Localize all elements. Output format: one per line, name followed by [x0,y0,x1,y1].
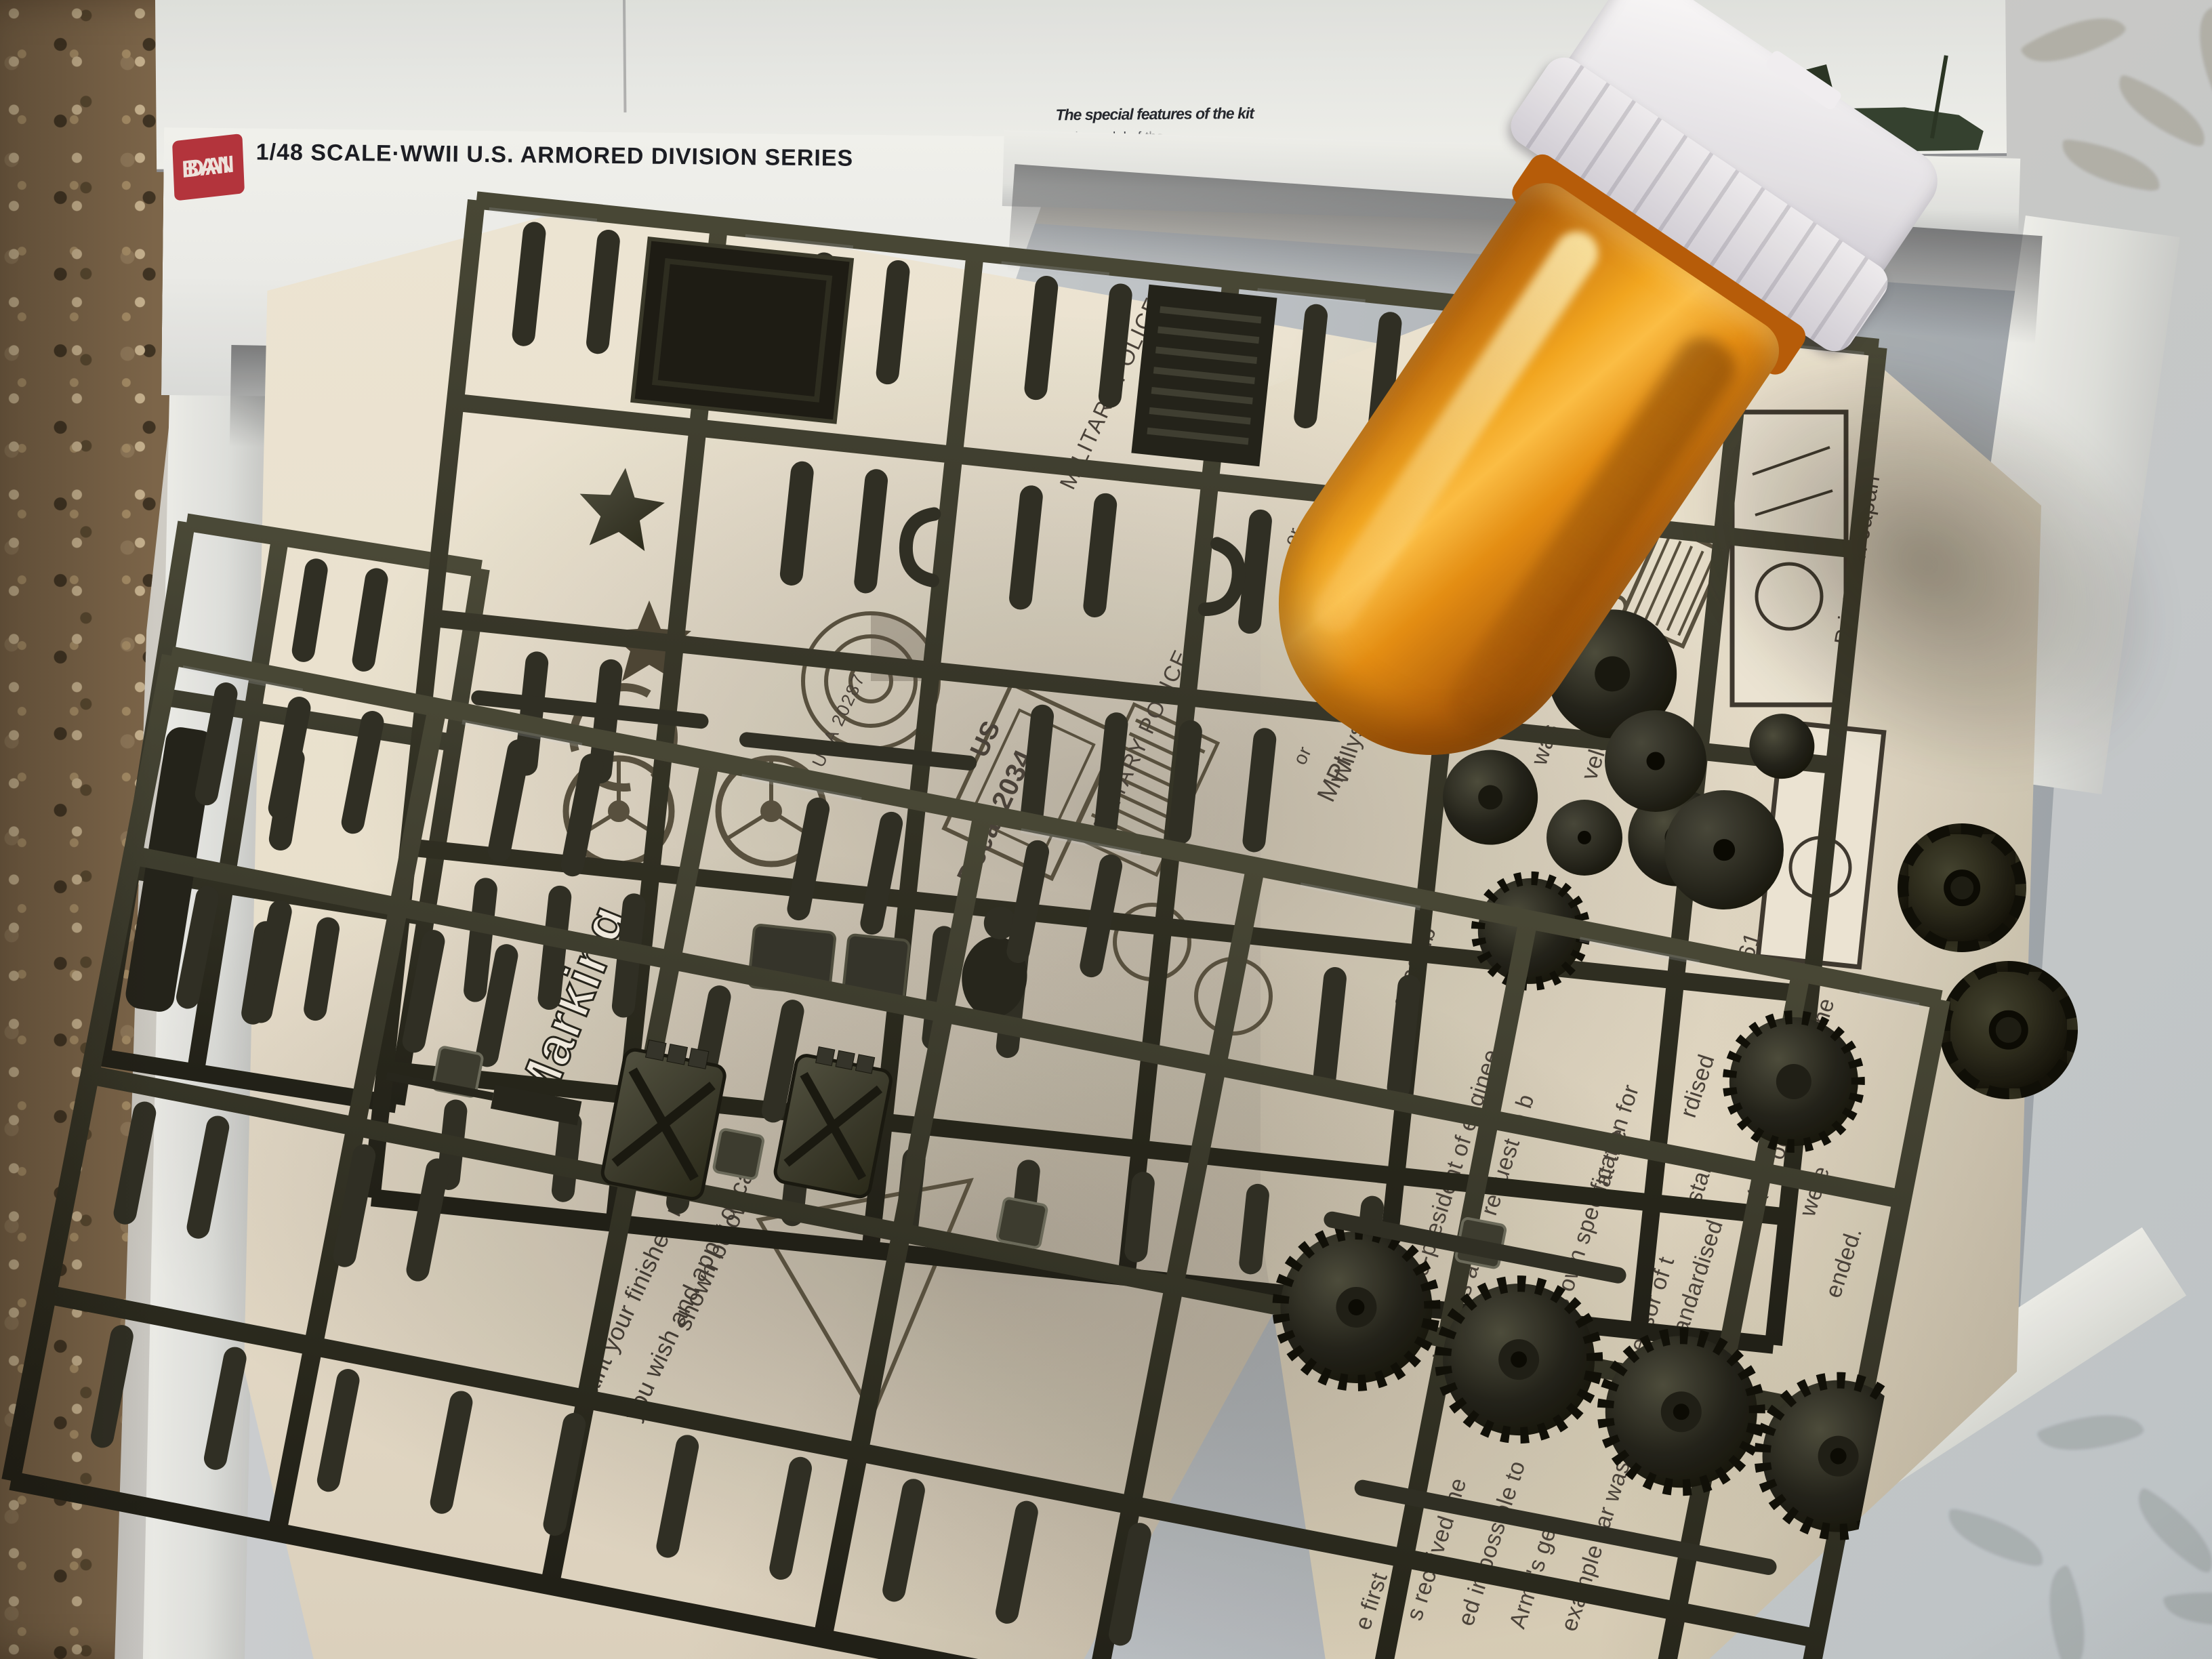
wheel-part [1257,930,1965,1545]
box-lid-seam [623,0,627,112]
disc-part [1547,800,1622,876]
features-heading: The special features of the kit [1055,104,1254,125]
disc-part [1605,710,1706,812]
photo-scene: The special features of the kit 1/48 sca… [0,0,2212,1659]
wheel-part [1940,961,2078,1099]
disc-part [1664,790,1784,909]
bandai-logo: BAN DAI [172,134,245,201]
box-edge-title: 1/48 SCALE·WWII U.S. ARMORED DIVISION SE… [256,139,854,171]
bandai-logo-text: DAI [186,155,230,179]
